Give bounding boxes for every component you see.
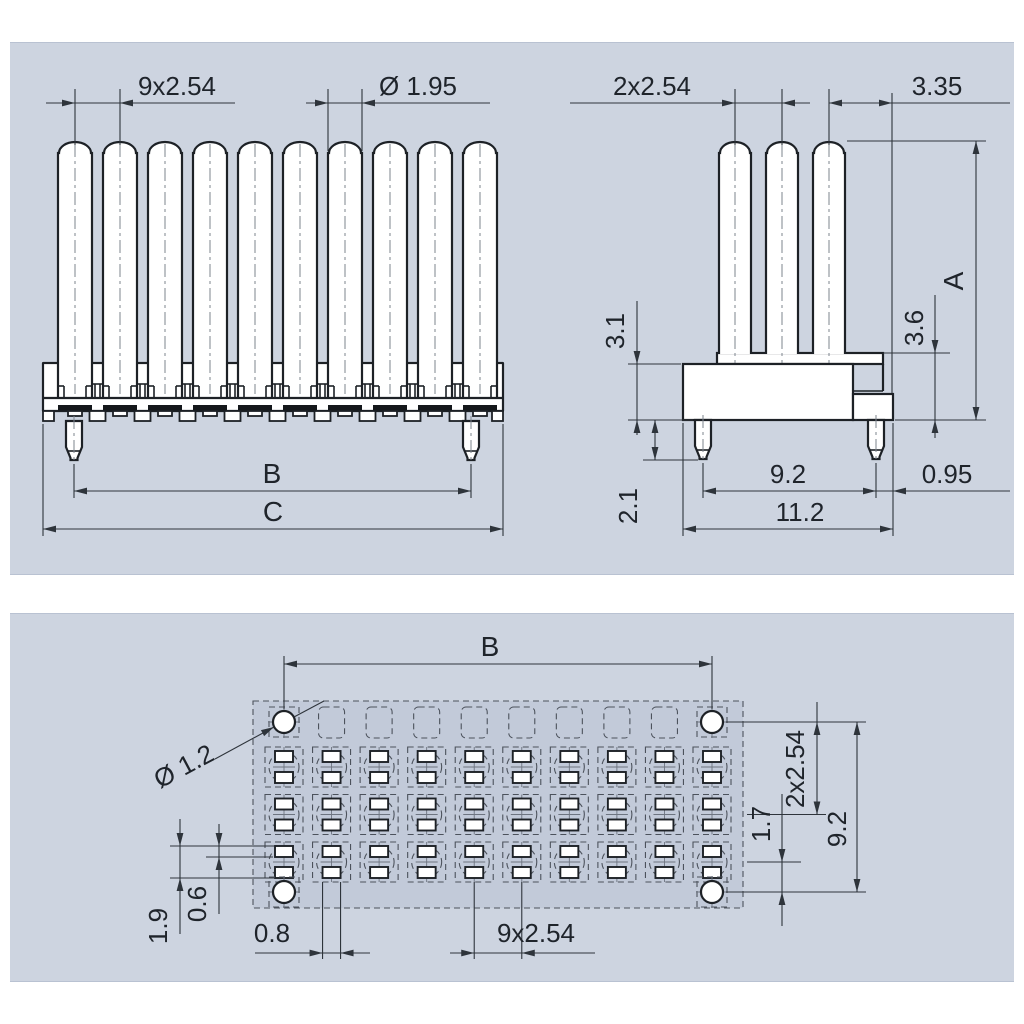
dim-side-peg-length: 2.1 (613, 488, 643, 524)
dim-front-pin-diameter: Ø 1.95 (379, 71, 457, 101)
dim-side-body-width: 11.2 (776, 497, 825, 527)
dim-side-pin-offset: 3.35 (912, 71, 963, 101)
top-views-svg: 9x2.54 Ø 1.95 B C 2x2.54 3.35 A 3.6 3.1 … (10, 43, 1014, 574)
drawing-sheet: 9x2.54 Ø 1.95 B C 2x2.54 3.35 A 3.6 3.1 … (0, 0, 1024, 1024)
dim-fp-pad-width: 0.8 (254, 918, 290, 948)
dim-fp-hole-diameter: Ø 1.2 (149, 738, 219, 794)
dim-front-span-b: B (263, 458, 282, 489)
dim-fp-row-gap: 1.7 (746, 806, 776, 842)
side-pins (719, 142, 845, 387)
dim-side-body-height: 3.1 (600, 313, 630, 349)
top-views-geometry (43, 89, 1010, 536)
panel-top-views: 9x2.54 Ø 1.95 B C 2x2.54 3.35 A 3.6 3.1 … (10, 42, 1014, 575)
dim-side-pitch: 2x2.54 (613, 71, 691, 101)
front-pins (58, 142, 497, 398)
dim-front-span-c: C (263, 496, 283, 527)
dim-fp-column-pitch: 9x2.54 (497, 918, 575, 948)
dim-fp-hole-row-span: 9.2 (822, 811, 852, 847)
footprint-svg: B Ø 1.2 2x2.54 1.7 9.2 1.9 0.6 0.8 9x2.5… (10, 614, 1014, 981)
dim-fp-pad-height: 0.6 (182, 886, 212, 922)
dim-side-edge-offset: 0.95 (922, 459, 973, 489)
side-body (683, 364, 893, 420)
dim-fp-span-b: B (481, 631, 500, 662)
dim-fp-pad-pair-height: 1.9 (143, 908, 173, 944)
dim-front-pitch: 9x2.54 (138, 71, 216, 101)
panel-footprint: B Ø 1.2 2x2.54 1.7 9.2 1.9 0.6 0.8 9x2.5… (10, 613, 1014, 982)
dim-side-height-a: A (938, 271, 969, 290)
dim-fp-row-span: 2x2.54 (780, 730, 810, 808)
dim-side-peg-span: 9.2 (770, 459, 806, 489)
dim-side-insulator-height: 3.6 (899, 310, 929, 346)
